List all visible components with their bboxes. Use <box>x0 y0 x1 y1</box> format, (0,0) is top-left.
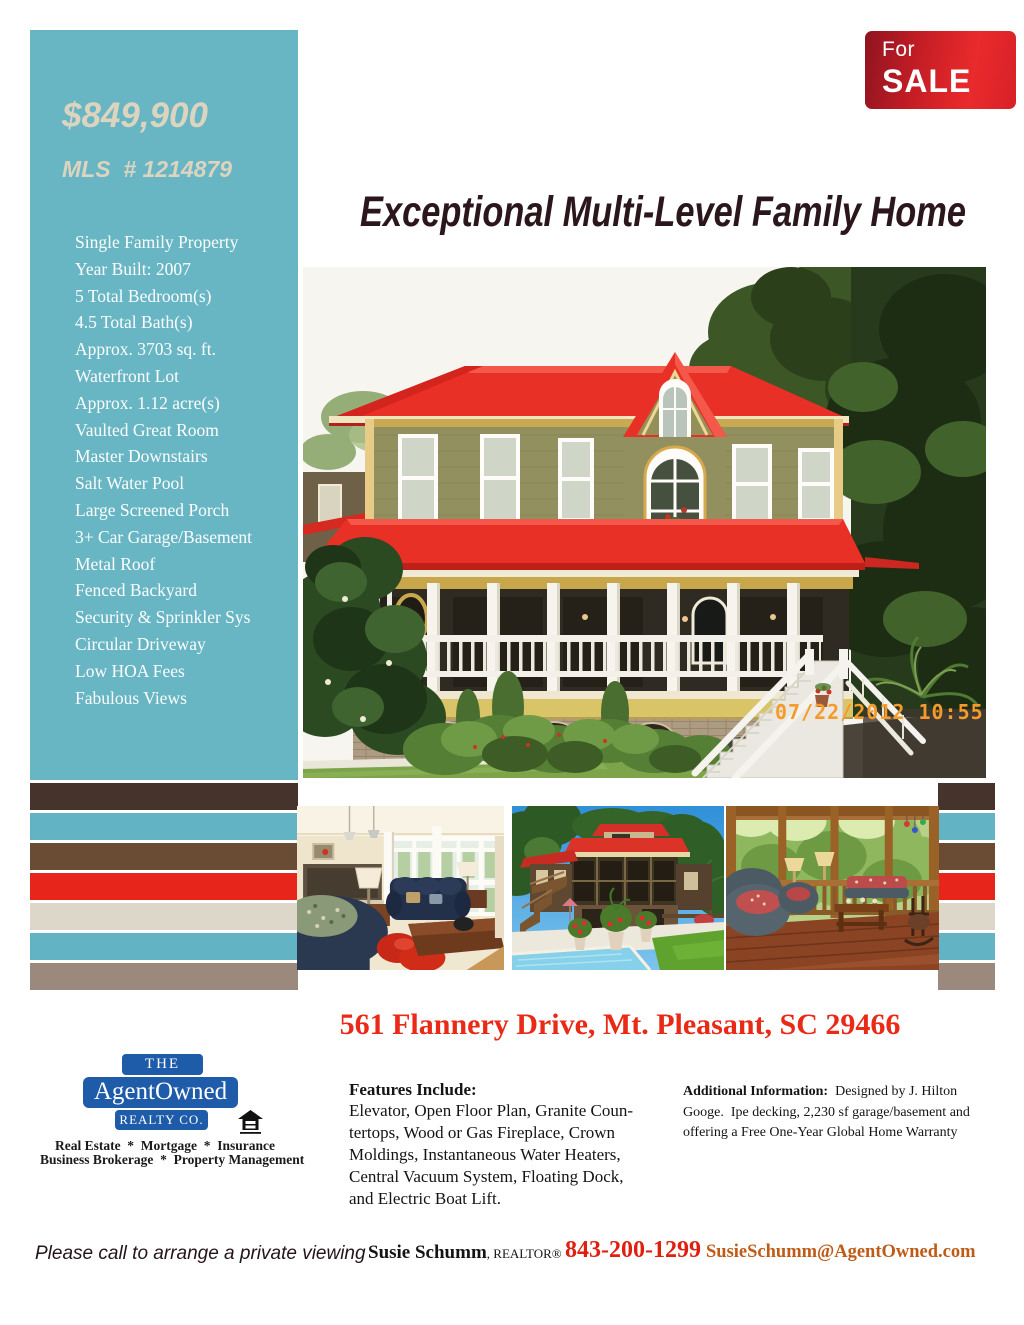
for-sale-badge-top: For <box>882 38 1016 62</box>
feature-list-item: Low HOA Fees <box>75 658 290 685</box>
feature-list-item: Waterfront Lot <box>75 363 290 390</box>
gallery-photo-porch <box>726 806 939 970</box>
color-stripe <box>30 963 298 990</box>
feature-list-item: Fenced Backyard <box>75 577 290 604</box>
gallery-photo-living-room <box>297 806 504 970</box>
equal-housing-icon <box>237 1108 264 1135</box>
contact-cta: Please call to arrange a private viewing <box>35 1243 366 1265</box>
color-stripe <box>938 933 995 960</box>
feature-list-item: Security & Sprinkler Sys <box>75 604 290 631</box>
color-stripe <box>30 873 298 900</box>
mls-number: MLS # 1214879 <box>62 156 232 183</box>
color-stripes-right <box>938 783 995 990</box>
color-stripe <box>30 783 298 810</box>
color-stripe <box>938 843 995 870</box>
feature-list: Single Family PropertyYear Built: 20075 … <box>75 229 290 711</box>
photo-timestamp: 07/22/2012 10:55 <box>775 700 984 724</box>
for-sale-badge-bottom: SALE <box>882 63 1016 100</box>
color-stripe <box>938 813 995 840</box>
feature-list-item: Metal Roof <box>75 551 290 578</box>
email-address: SusieSchumm@AgentOwned.com <box>706 1242 976 1263</box>
feature-list-item: Salt Water Pool <box>75 470 290 497</box>
feature-list-item: 3+ Car Garage/Basement <box>75 524 290 551</box>
agency-logo-realty: REALTY CO. <box>115 1110 208 1130</box>
flyer-title: Exceptional Multi-Level Family Home <box>360 188 920 236</box>
agent-name: Susie Schumm <box>368 1242 487 1263</box>
gallery-photo-pool <box>512 806 724 970</box>
listing-price: $849,900 <box>62 96 208 136</box>
additional-heading: Additional Information: <box>683 1084 828 1099</box>
agency-logo-name: AgentOwned <box>83 1077 238 1108</box>
agency-tagline-line2: Business Brokerage * Property Management <box>40 1152 290 1168</box>
for-sale-badge: For SALE <box>865 31 1016 109</box>
color-stripe <box>30 933 298 960</box>
feature-list-item: Fabulous Views <box>75 685 290 712</box>
features-heading: Features Include: <box>349 1080 674 1100</box>
color-stripe <box>30 843 298 870</box>
color-stripe <box>30 903 298 930</box>
feature-list-item: Single Family Property <box>75 229 290 256</box>
agency-logo-the: THE <box>122 1054 203 1075</box>
color-stripe <box>938 783 995 810</box>
feature-list-item: Master Downstairs <box>75 443 290 470</box>
feature-list-item: Approx. 1.12 acre(s) <box>75 390 290 417</box>
feature-list-item: Vaulted Great Room <box>75 417 290 444</box>
feature-list-item: Approx. 3703 sq. ft. <box>75 336 290 363</box>
color-stripe <box>30 813 298 840</box>
additional-section: Additional Information: Designed by J. H… <box>683 1082 995 1144</box>
color-stripes-left <box>30 783 298 990</box>
color-stripe <box>938 963 995 990</box>
feature-list-item: 5 Total Bedroom(s) <box>75 283 290 310</box>
features-text: Elevator, Open Floor Plan, Granite Coun-… <box>349 1100 674 1210</box>
features-section: Features Include: Elevator, Open Floor P… <box>349 1080 674 1210</box>
feature-list-item: Circular Driveway <box>75 631 290 658</box>
agent-title: , REALTOR® <box>487 1246 562 1261</box>
color-stripe <box>938 903 995 930</box>
property-address: 561 Flannery Drive, Mt. Pleasant, SC 294… <box>280 1008 960 1042</box>
phone-number: 843-200-1299 <box>565 1237 701 1264</box>
main-photo-house: 07/22/2012 10:55 <box>303 267 986 778</box>
agent-name-block: Susie Schumm, REALTOR® <box>368 1242 562 1264</box>
feature-list-item: Large Screened Porch <box>75 497 290 524</box>
feature-list-item: Year Built: 2007 <box>75 256 290 283</box>
color-stripe <box>938 873 995 900</box>
feature-list-item: 4.5 Total Bath(s) <box>75 309 290 336</box>
